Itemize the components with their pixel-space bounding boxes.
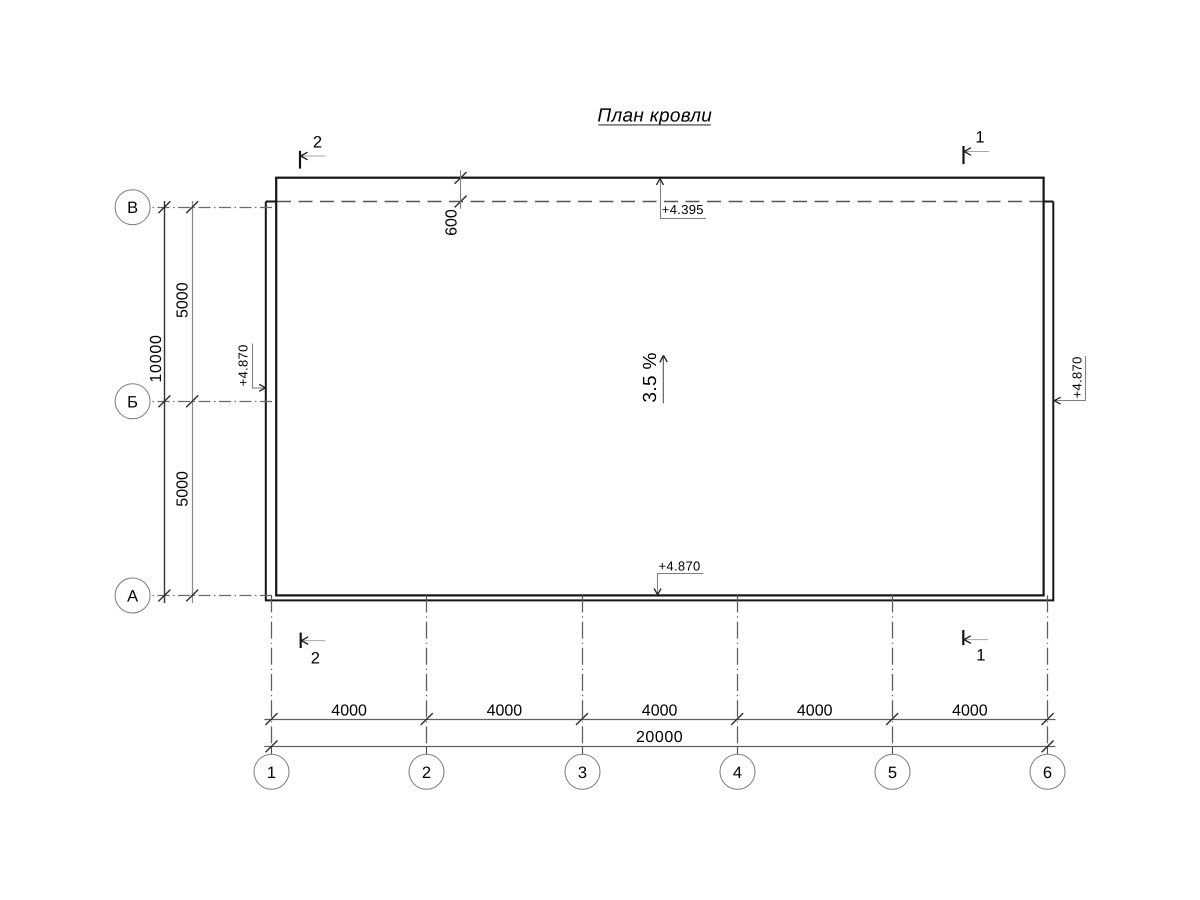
svg-text:4: 4 (733, 764, 742, 782)
svg-text:4000: 4000 (797, 702, 833, 719)
svg-text:+4.395: +4.395 (662, 202, 704, 217)
svg-text:2: 2 (422, 764, 431, 782)
svg-text:+4.870: +4.870 (235, 344, 250, 386)
svg-text:5000: 5000 (175, 471, 192, 507)
svg-text:+4.870: +4.870 (1070, 356, 1085, 398)
svg-text:2: 2 (313, 133, 322, 151)
svg-text:4000: 4000 (487, 702, 523, 719)
svg-text:1: 1 (976, 646, 985, 664)
svg-text:План кровли: План кровли (597, 106, 712, 127)
svg-text:3: 3 (578, 764, 587, 782)
svg-text:5000: 5000 (175, 282, 192, 318)
svg-text:А: А (127, 588, 138, 606)
svg-text:5: 5 (888, 764, 897, 782)
svg-text:4000: 4000 (952, 702, 988, 719)
svg-text:600: 600 (444, 209, 461, 236)
svg-text:4000: 4000 (642, 702, 678, 719)
svg-text:4000: 4000 (331, 702, 367, 719)
svg-text:10000: 10000 (148, 334, 165, 382)
svg-text:20000: 20000 (636, 729, 683, 746)
svg-text:В: В (127, 199, 138, 217)
svg-text:2: 2 (311, 649, 320, 667)
svg-text:3.5 %: 3.5 % (640, 352, 661, 402)
svg-text:6: 6 (1043, 764, 1052, 782)
svg-text:1: 1 (267, 764, 276, 782)
svg-text:Б: Б (127, 393, 138, 411)
svg-text:1: 1 (975, 129, 984, 147)
svg-text:+4.870: +4.870 (659, 558, 701, 573)
